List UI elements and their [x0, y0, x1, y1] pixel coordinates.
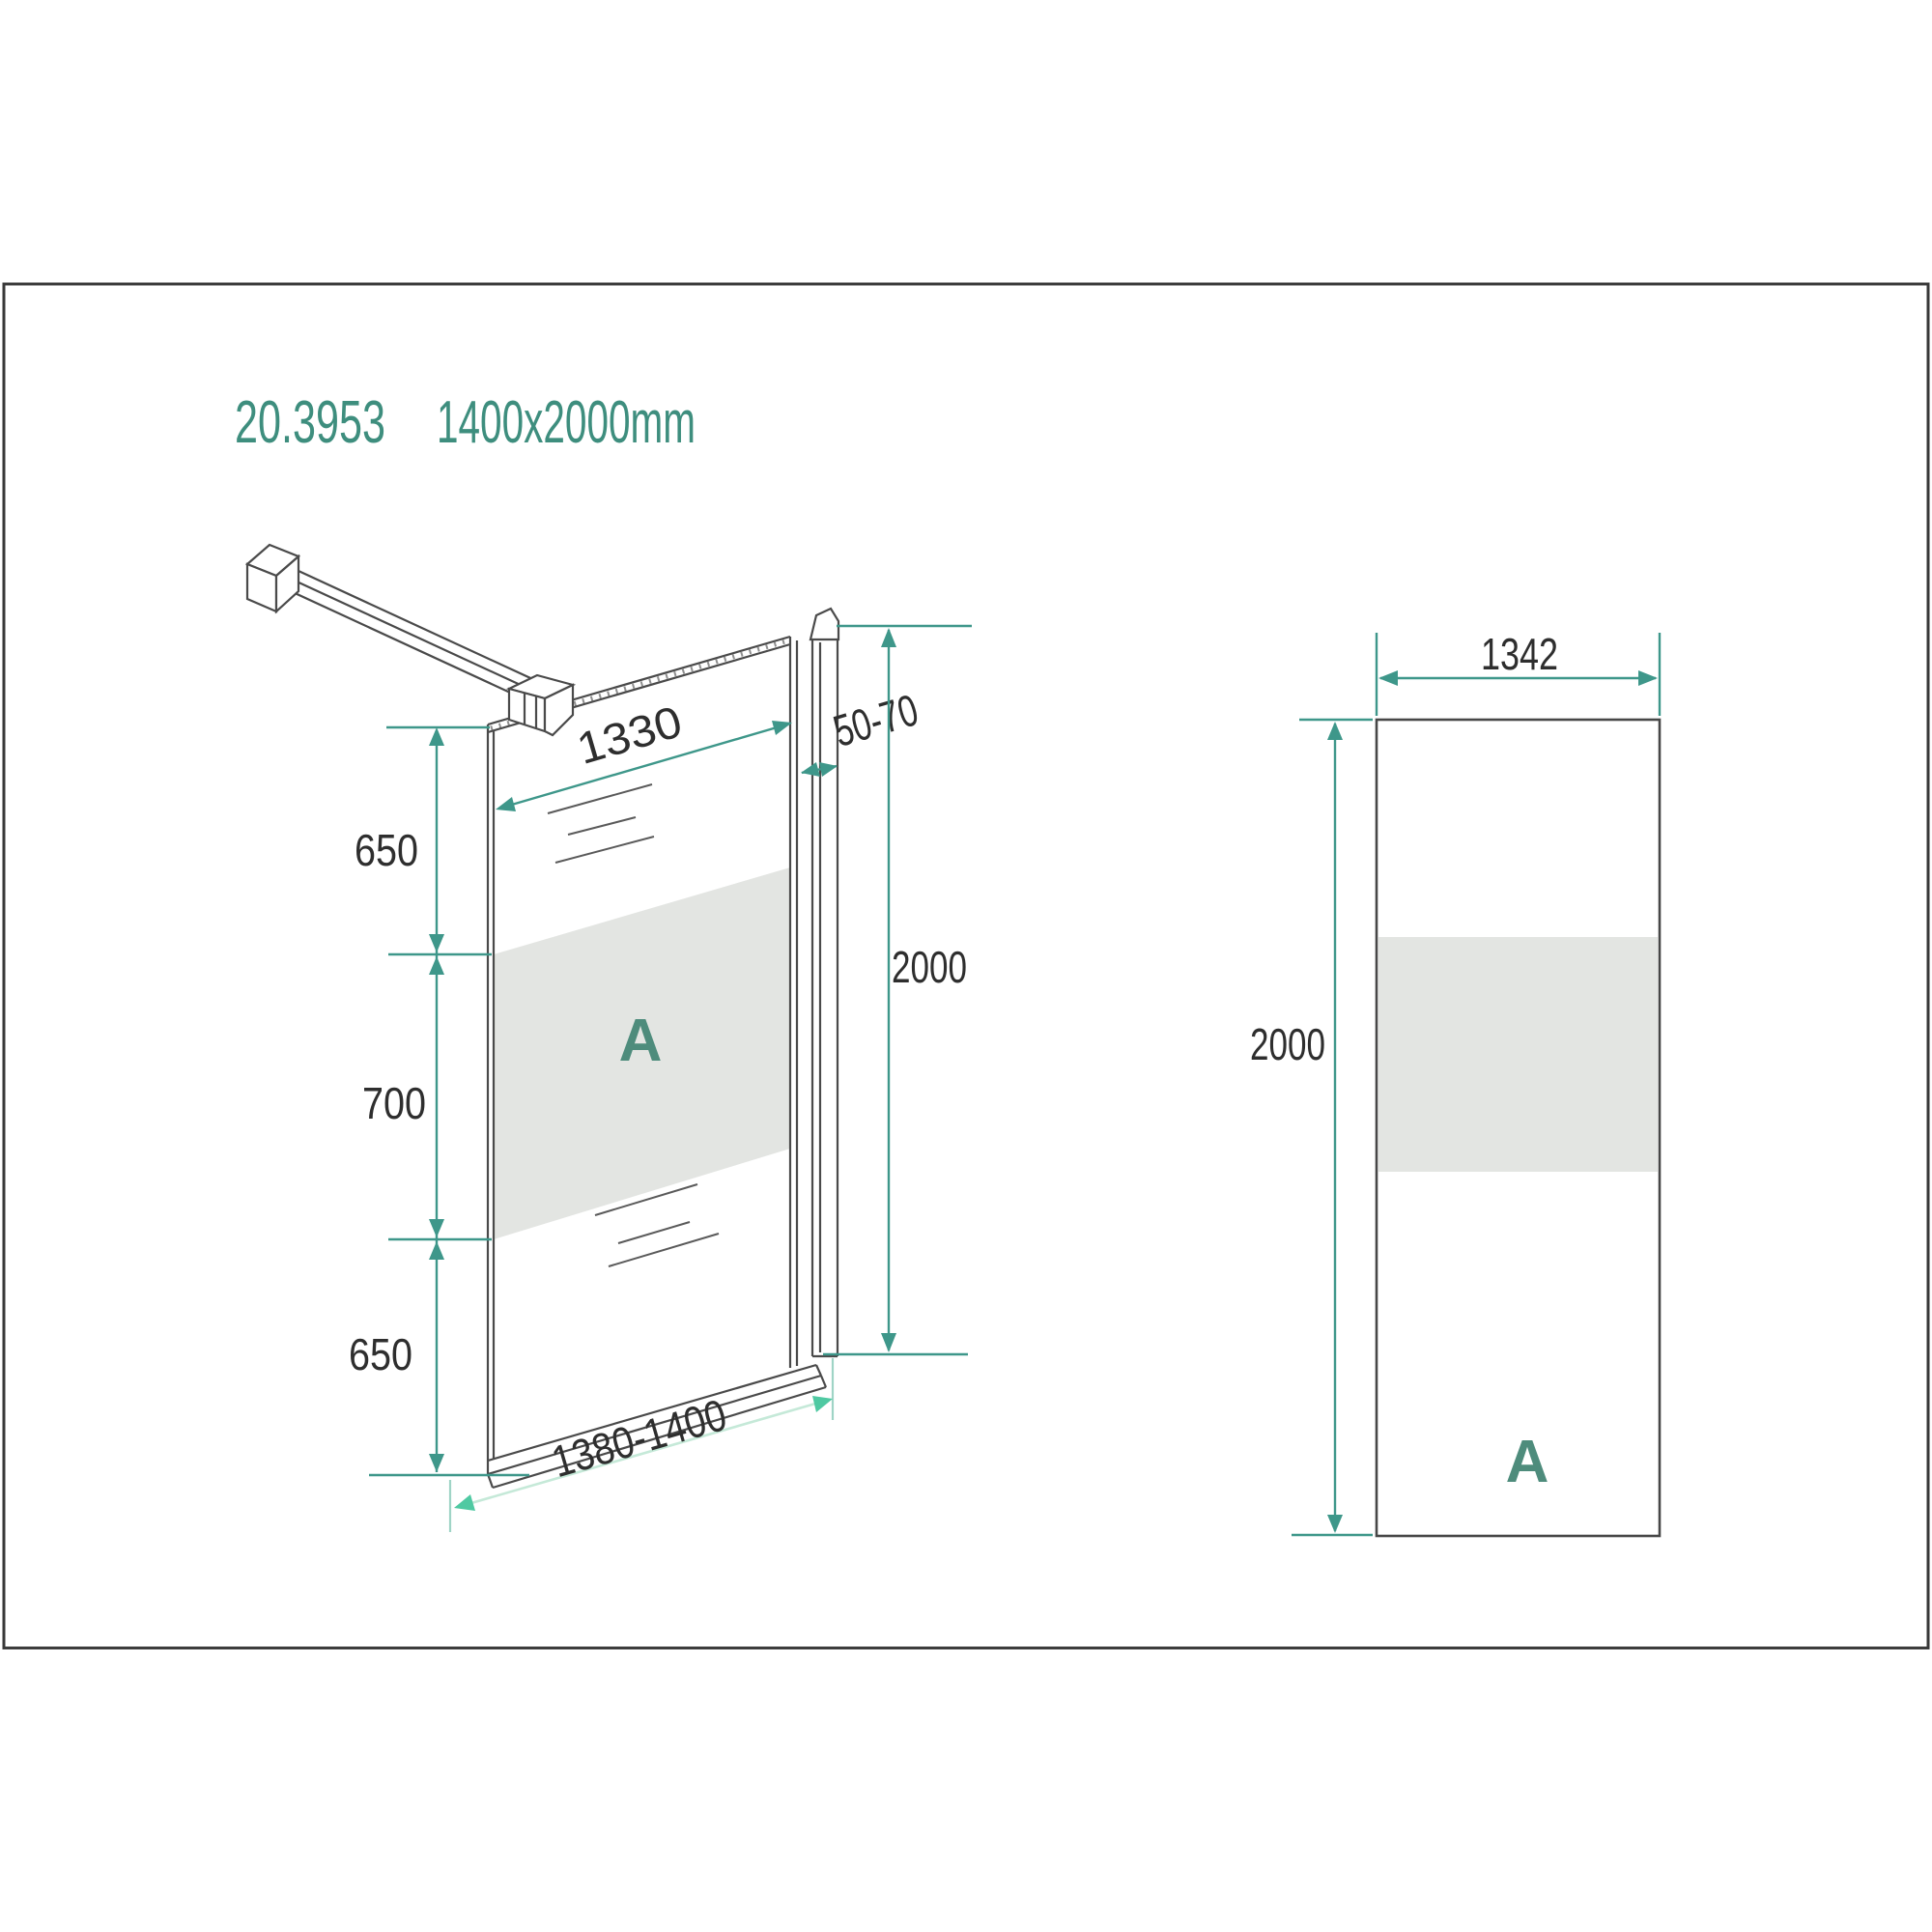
dim-overall-width: 1380-1400 [450, 1358, 833, 1532]
title-block: 20.3953 1400x2000mm [235, 389, 696, 456]
dim-front-height-label: 2000 [1250, 1019, 1325, 1069]
dim-glass-width-top-label: 1330 [571, 696, 687, 774]
dim-segment-top: 650 [355, 825, 418, 875]
drawing-svg: 20.3953 1400x2000mm [0, 0, 1932, 1932]
product-size: 1400x2000mm [437, 389, 696, 456]
glass-clamp-bracket [509, 675, 573, 735]
front-view: 1342 2000 A [1250, 629, 1660, 1536]
glass-reflection-lines-upper [548, 784, 654, 863]
support-bar-wall-cap [247, 545, 298, 611]
product-model-number: 20.3953 [235, 389, 385, 456]
dim-front-height: 2000 [1250, 720, 1373, 1535]
dim-overall-width-label: 1380-1400 [546, 1389, 731, 1487]
dim-height-label-perspective: 2000 [892, 942, 967, 992]
technical-drawing-page: 20.3953 1400x2000mm [0, 0, 1932, 1932]
dim-front-width-label: 1342 [1481, 629, 1558, 679]
frosted-band-front [1378, 937, 1658, 1172]
dim-front-width: 1342 [1377, 629, 1660, 716]
dim-segment-bottom: 650 [349, 1329, 412, 1379]
panel-label-front: A [1506, 1429, 1549, 1495]
support-bar [247, 545, 573, 735]
dim-segment-middle: 700 [362, 1078, 426, 1128]
perspective-view: A 650 700 650 1330 [247, 545, 972, 1532]
wall-profile-top-cap [810, 609, 838, 639]
dim-wall-gap-label: 50-70 [828, 684, 923, 756]
panel-label-perspective: A [619, 1008, 663, 1074]
